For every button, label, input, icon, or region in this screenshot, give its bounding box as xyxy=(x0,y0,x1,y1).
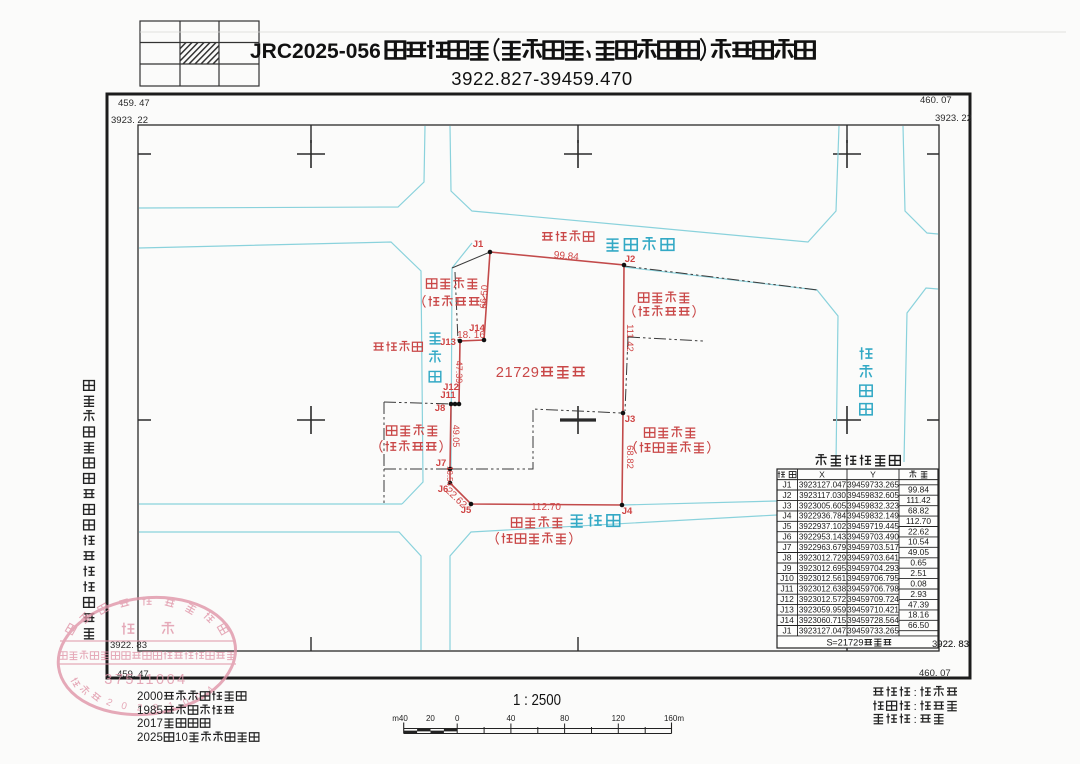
svg-text:J9: J9 xyxy=(783,563,792,573)
svg-text:0: 0 xyxy=(144,691,150,703)
svg-text:459. 47: 459. 47 xyxy=(118,98,150,109)
svg-text:J13: J13 xyxy=(780,604,794,614)
svg-text:J14: J14 xyxy=(780,615,794,625)
svg-text:18.16: 18.16 xyxy=(908,610,929,620)
svg-text:99.84: 99.84 xyxy=(908,485,929,495)
svg-text:J6: J6 xyxy=(783,532,792,542)
svg-text:39459709.724: 39459709.724 xyxy=(847,595,899,604)
svg-text:J1: J1 xyxy=(783,479,792,489)
svg-text:39459710.421: 39459710.421 xyxy=(847,605,899,614)
svg-text:3923012.572: 3923012.572 xyxy=(799,595,847,604)
svg-text:3922. 83: 3922. 83 xyxy=(932,639,969,650)
svg-text:3923117.030: 3923117.030 xyxy=(799,491,846,500)
svg-text:2.93: 2.93 xyxy=(910,589,927,599)
svg-text:3923127.047: 3923127.047 xyxy=(799,480,847,489)
svg-text:66.50: 66.50 xyxy=(908,620,929,630)
svg-text:39459704.293: 39459704.293 xyxy=(847,564,899,573)
svg-text:J12: J12 xyxy=(443,382,459,393)
svg-text:3923012.561: 3923012.561 xyxy=(799,574,847,583)
svg-text:3923005.605: 3923005.605 xyxy=(799,501,847,510)
svg-text:J5: J5 xyxy=(783,521,792,531)
svg-text:112.70: 112.70 xyxy=(531,502,561,513)
svg-text:1: 1 xyxy=(504,365,512,381)
svg-text:3923. 22: 3923. 22 xyxy=(935,113,972,124)
svg-text:3923127.047: 3923127.047 xyxy=(799,626,847,635)
svg-text:111.42: 111.42 xyxy=(906,495,931,505)
svg-text::: : xyxy=(914,701,917,713)
svg-text:9: 9 xyxy=(144,705,150,717)
svg-text:460. 07: 460. 07 xyxy=(920,95,952,106)
svg-text:9: 9 xyxy=(858,638,863,648)
svg-text:JRC2025-056: JRC2025-056 xyxy=(250,40,381,63)
svg-text:47.39: 47.39 xyxy=(908,599,929,609)
svg-text:2.51: 2.51 xyxy=(910,568,927,578)
svg-text:39459733.265: 39459733.265 xyxy=(847,626,899,635)
svg-text:J7: J7 xyxy=(783,542,792,552)
svg-text:3922963.679: 3922963.679 xyxy=(799,543,847,552)
svg-text:7: 7 xyxy=(157,718,163,730)
svg-text:39459703.641: 39459703.641 xyxy=(847,553,899,562)
svg-text:111.42: 111.42 xyxy=(624,324,635,352)
svg-text:J4: J4 xyxy=(783,511,792,521)
svg-text:J2: J2 xyxy=(625,254,636,265)
svg-text:10.54: 10.54 xyxy=(445,466,454,487)
svg-text:m40: m40 xyxy=(392,714,408,723)
svg-text:0: 0 xyxy=(455,714,460,723)
svg-text:2: 2 xyxy=(150,732,156,744)
svg-text:39459832.323: 39459832.323 xyxy=(847,501,899,510)
svg-text:1: 1 xyxy=(175,732,181,744)
svg-text:5: 5 xyxy=(157,732,163,744)
svg-text::: : xyxy=(914,714,917,726)
svg-text:39459706.795: 39459706.795 xyxy=(847,574,899,583)
svg-text:120: 120 xyxy=(612,714,626,723)
svg-text:0: 0 xyxy=(144,732,150,744)
svg-text:J8: J8 xyxy=(783,552,792,562)
svg-text:2: 2 xyxy=(137,691,143,703)
svg-text:39459703.517: 39459703.517 xyxy=(847,543,899,552)
svg-text:68.82: 68.82 xyxy=(624,445,635,469)
svg-text:460. 07: 460. 07 xyxy=(919,668,951,679)
svg-text:39459706.798: 39459706.798 xyxy=(847,585,899,594)
svg-text:J7: J7 xyxy=(436,458,447,469)
svg-text:J1: J1 xyxy=(783,625,792,635)
svg-text:1: 1 xyxy=(137,705,143,717)
svg-text:2: 2 xyxy=(137,732,143,744)
svg-text:J10: J10 xyxy=(780,573,794,583)
svg-text:39459719.445: 39459719.445 xyxy=(847,522,899,531)
svg-text:49.05: 49.05 xyxy=(908,547,929,557)
svg-text:0: 0 xyxy=(182,732,188,744)
svg-text:J12: J12 xyxy=(780,594,794,604)
svg-text:2: 2 xyxy=(522,365,530,381)
svg-text:3923060.715: 3923060.715 xyxy=(799,616,847,625)
svg-text:39459733.265: 39459733.265 xyxy=(847,480,899,489)
svg-text:J4: J4 xyxy=(622,506,633,517)
svg-text:J11: J11 xyxy=(780,584,793,594)
svg-text:3923012.695: 3923012.695 xyxy=(799,564,847,573)
svg-text:47.39: 47.39 xyxy=(454,361,464,384)
svg-text:0: 0 xyxy=(157,691,163,703)
svg-text:Y: Y xyxy=(870,470,876,480)
svg-text:3923059.959: 3923059.959 xyxy=(799,605,847,614)
svg-text:49.05: 49.05 xyxy=(451,425,461,448)
svg-text:J3: J3 xyxy=(783,500,792,510)
svg-text:18. 16: 18. 16 xyxy=(457,330,485,341)
svg-text:39459832.149: 39459832.149 xyxy=(847,512,899,521)
svg-text:J1: J1 xyxy=(473,239,484,250)
svg-text:40: 40 xyxy=(506,714,515,723)
svg-text:3922.827-39459.470: 3922.827-39459.470 xyxy=(451,68,633,89)
svg-text:1 : 2500: 1 : 2500 xyxy=(513,692,561,709)
svg-text:10.54: 10.54 xyxy=(908,537,929,547)
svg-text:0.08: 0.08 xyxy=(910,578,927,588)
svg-text:3923012.729: 3923012.729 xyxy=(799,553,847,562)
svg-text:68.82: 68.82 xyxy=(908,505,929,515)
svg-text:J3: J3 xyxy=(625,414,636,425)
svg-text:2: 2 xyxy=(496,365,504,381)
svg-text:X: X xyxy=(819,470,825,480)
svg-text:39459832.605: 39459832.605 xyxy=(847,491,899,500)
svg-text:J13: J13 xyxy=(440,337,456,348)
svg-text:0: 0 xyxy=(144,718,150,730)
svg-text:3922. 83: 3922. 83 xyxy=(110,640,147,651)
svg-text:2: 2 xyxy=(137,718,143,730)
svg-text:3922937.102: 3922937.102 xyxy=(799,522,847,531)
svg-text:9: 9 xyxy=(531,365,539,381)
svg-text:0: 0 xyxy=(150,691,156,703)
svg-text:1: 1 xyxy=(150,718,156,730)
svg-text:160m: 160m xyxy=(664,714,684,723)
svg-text:80: 80 xyxy=(560,714,569,723)
svg-text:3923. 22: 3923. 22 xyxy=(111,115,148,126)
svg-text::: : xyxy=(914,687,917,699)
svg-text:37511004: 37511004 xyxy=(104,672,187,688)
svg-text:5: 5 xyxy=(157,705,163,717)
svg-text:39459703.490: 39459703.490 xyxy=(847,533,899,542)
svg-text:22.62: 22.62 xyxy=(908,526,929,536)
svg-text:0.65: 0.65 xyxy=(910,558,927,568)
svg-text:39459728.564: 39459728.564 xyxy=(847,616,899,625)
svg-text:8: 8 xyxy=(150,705,156,717)
svg-text:112.70: 112.70 xyxy=(906,516,931,526)
svg-text:J2: J2 xyxy=(783,490,792,500)
svg-text:3922953.143: 3922953.143 xyxy=(799,533,847,542)
svg-text:7: 7 xyxy=(513,365,521,381)
svg-text:J8: J8 xyxy=(435,403,446,414)
svg-text:3922936.784: 3922936.784 xyxy=(799,512,847,521)
svg-text:3923012.638: 3923012.638 xyxy=(799,585,847,594)
svg-text:20: 20 xyxy=(426,714,435,723)
